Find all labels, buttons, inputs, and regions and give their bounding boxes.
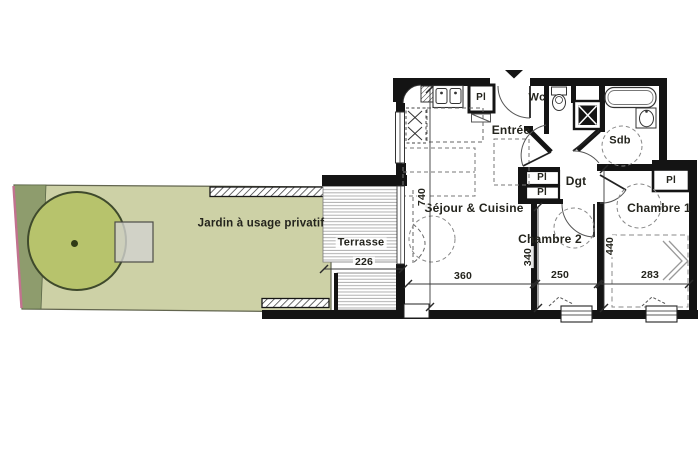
terrace-deck-lower [337,273,397,310]
dim-label-360: 360 [452,271,474,282]
floor-plan: Jardin à usage privatif Terrasse Séjour … [0,0,700,453]
garden-area [14,185,332,312]
floor-plan-drawing [0,0,700,453]
entrance-door-arc [498,86,530,118]
closet-shelf-line [472,114,491,122]
bathroom-fixtures [605,88,656,129]
garden-label: Jardin à usage privatif [198,218,325,230]
window-bedroom2 [561,306,592,322]
dim-label-440: 440 [605,235,616,257]
bed-chevron-2 [669,241,688,280]
closet-label-hall-top: Pl [537,173,547,183]
room-label-wc: Wc [529,93,546,104]
closet-label-bedroom1: Pl [666,176,676,186]
dim-label-740: 740 [417,186,428,208]
turning-circle-living [409,216,455,262]
cooktop-icon [406,108,426,143]
room-label-bedroom1: Chambre 1 [627,202,691,214]
room-label-living: Séjour & Cuisine [424,202,523,214]
dim-label-340: 340 [523,246,534,268]
wc-fixtures [552,87,602,129]
living-door-leaf [523,152,551,166]
bay-window-swing-dashed [413,224,425,263]
dim-label-250: 250 [549,270,571,281]
dim-label-283: 283 [639,270,661,281]
toilet-icon [553,95,566,111]
closet-label-hall-bottom: Pl [537,188,547,198]
room-label-bedroom2: Chambre 2 [518,233,582,245]
fence-hatch-bottom [262,299,329,308]
window-bedroom1 [646,306,677,322]
bathroom-door-leaf [573,131,599,151]
tree-icon [28,192,126,290]
sink-tap-right [454,92,457,95]
entrance-arrow-icon [505,70,523,79]
terrace-label: Terrasse [336,238,387,249]
sink-tap-left [440,92,443,95]
fence-hatch-top [210,187,331,197]
closet-label-kitchen: Pl [476,93,486,103]
tree-trunk-dot [71,240,78,247]
radiator-bedroom1 [642,297,666,306]
dim-label-226: 226 [353,257,375,268]
paving-square [115,222,153,262]
terrace-deck-upper [323,186,399,262]
washbasin-tap [645,110,648,113]
room-label-hall: Dgt [566,175,587,187]
kitchen-fixtures [403,86,529,197]
window-living-bottom [404,304,429,318]
bed-chevron-1 [663,241,682,280]
cooktop-burners [408,111,422,140]
room-label-bathroom: Sdb [609,136,630,147]
bathroom-door-arc [573,151,599,163]
radiator-bedroom2 [549,297,573,306]
toilet-cistern [552,87,567,95]
room-label-entry: Entrée [492,124,531,136]
